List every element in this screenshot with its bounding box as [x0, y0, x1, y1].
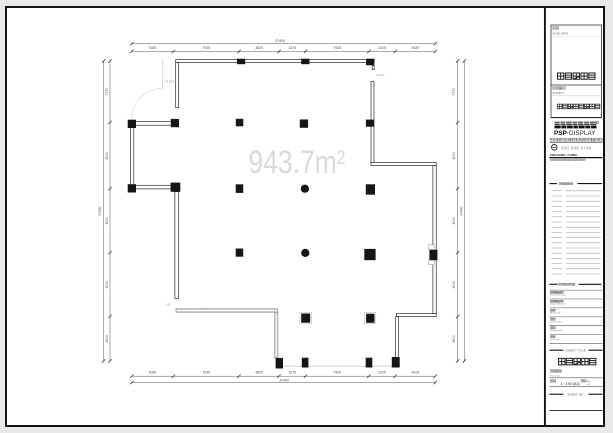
svg-text:M-1528: M-1528: [166, 80, 175, 83]
svg-text:4928: 4928: [411, 371, 419, 375]
svg-text:7938: 7938: [333, 46, 341, 50]
svg-text:ZHEJIANG. CHINA: ZHEJIANG. CHINA: [550, 153, 578, 157]
svg-text:4825: 4825: [255, 371, 263, 375]
svg-text:5610: 5610: [105, 335, 109, 343]
svg-text:7938: 7938: [202, 46, 210, 50]
svg-text:5300: 5300: [149, 371, 157, 375]
svg-text:Designed by: Designed by: [550, 330, 563, 332]
svg-text:Checked by: Checked by: [550, 321, 562, 323]
svg-text:7900: 7900: [333, 371, 341, 375]
svg-text:37400: 37400: [275, 39, 285, 43]
svg-text:8000: 8000: [452, 217, 456, 225]
svg-text:Audited by: Audited by: [550, 312, 561, 315]
svg-text:8000: 8000: [105, 281, 109, 289]
svg-text:Drawn by: Drawn by: [550, 338, 560, 341]
svg-text:4925: 4925: [411, 46, 419, 50]
svg-text:PSP·DISPLAY: PSP·DISPLAY: [554, 130, 596, 137]
svg-text:Project No.: Project No.: [550, 374, 561, 377]
svg-text:8000: 8000: [105, 152, 109, 160]
svg-text:7938: 7938: [202, 371, 210, 375]
svg-text:37440: 37440: [459, 206, 463, 216]
svg-text:2225: 2225: [378, 46, 386, 50]
svg-text:Project Manager: Project Manager: [550, 294, 566, 297]
svg-text:3275: 3275: [288, 371, 296, 375]
svg-text:SUBJECT: SUBJECT: [553, 92, 565, 95]
svg-text:1 : 150 (A3): 1 : 150 (A3): [561, 382, 580, 386]
svg-text:Project Architect: Project Architect: [550, 303, 566, 306]
svg-text:DEVELOPER: DEVELOPER: [553, 32, 568, 35]
svg-text:8000: 8000: [105, 217, 109, 225]
svg-text:M-1521: M-1521: [376, 74, 385, 77]
svg-text:3275: 3275: [288, 46, 296, 50]
svg-text:SHEET N0.: SHEET N0.: [568, 392, 585, 396]
svg-text:3225: 3225: [378, 371, 386, 375]
svg-text:8000: 8000: [452, 152, 456, 160]
svg-text:7770: 7770: [105, 88, 109, 96]
svg-text:37400: 37400: [279, 379, 289, 383]
svg-text:5610: 5610: [452, 335, 456, 343]
svg-text:943.7m2: 943.7m2: [249, 144, 346, 180]
svg-text:8000: 8000: [452, 281, 456, 289]
svg-text:7770: 7770: [452, 88, 456, 96]
svg-text:37440: 37440: [98, 206, 102, 216]
svg-text:400 698 6799: 400 698 6799: [561, 146, 592, 151]
svg-text:5300: 5300: [149, 46, 157, 50]
svg-text:4825: 4825: [255, 46, 263, 50]
svg-text:SHEET TITLE: SHEET TITLE: [566, 348, 586, 352]
